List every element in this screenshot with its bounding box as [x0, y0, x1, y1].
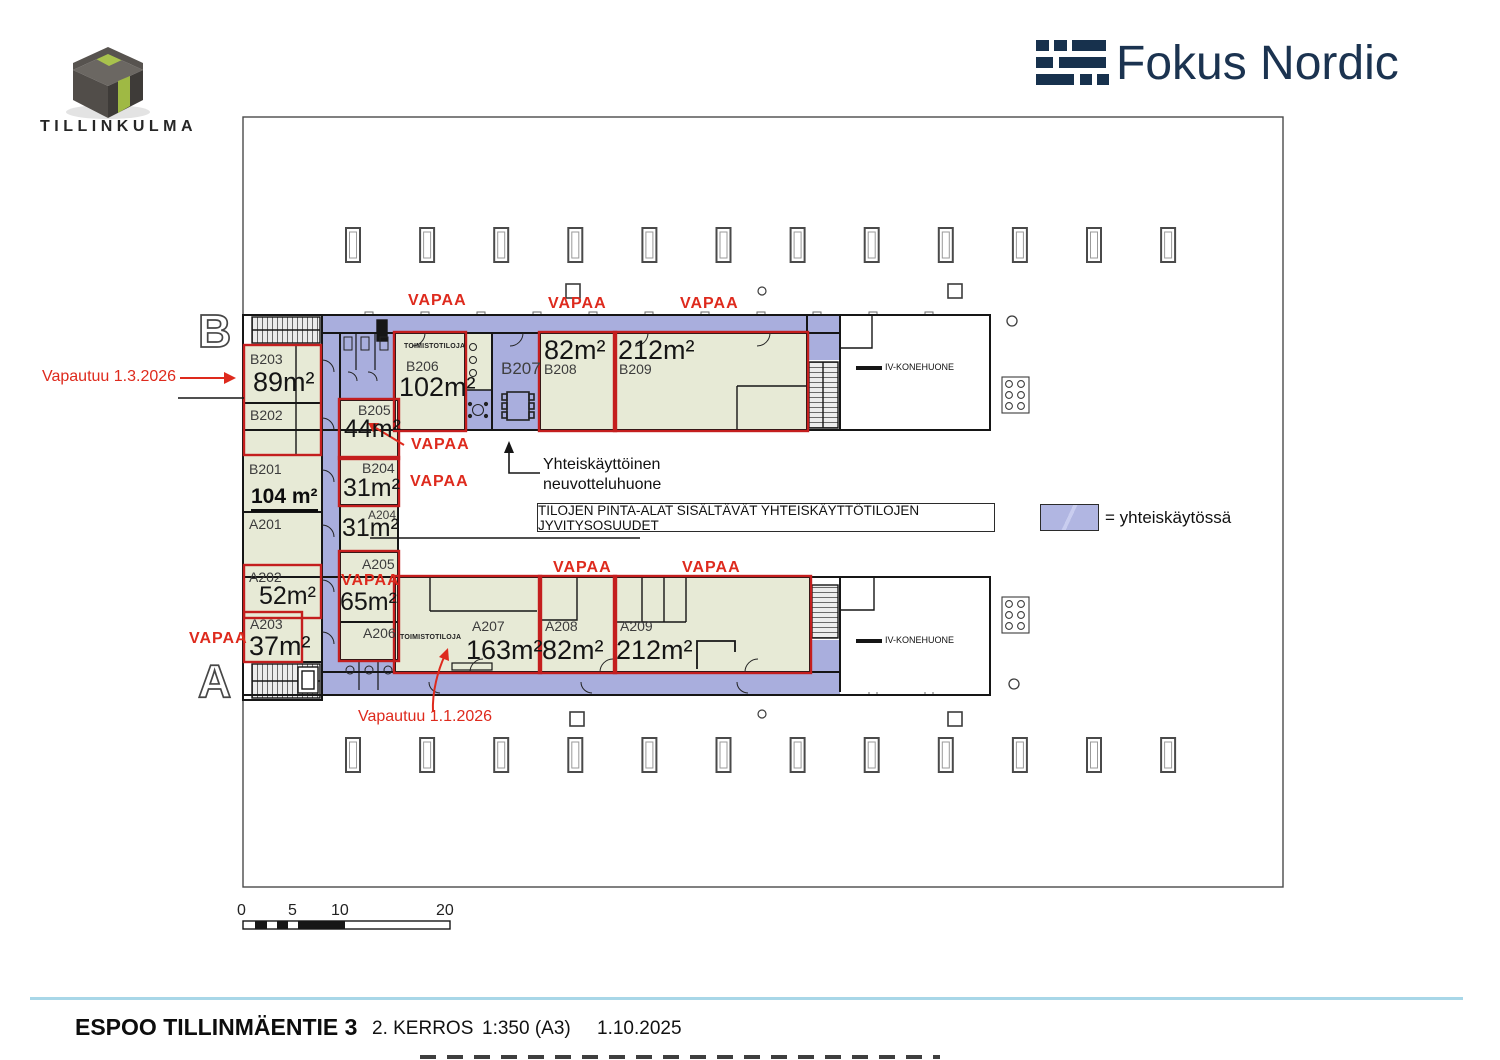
vapaa-label-A203: VAPAA — [189, 631, 248, 647]
machine-room-top-label: IV-KONEHUONE — [856, 363, 954, 372]
room-id-B202: B202 — [250, 408, 283, 422]
vacating-note-a206: Vapautuu 1.1.2026 — [358, 709, 492, 725]
room-id-A207: A207 — [472, 619, 505, 633]
scale-tick-0: 0 — [237, 903, 246, 919]
footer-floor: 2. KERROS — [372, 1018, 473, 1040]
shared-use-swatch — [1040, 504, 1099, 531]
room-type-A206: TOIMISTOTILOJA — [400, 634, 461, 641]
room-area-B205: 44m² — [344, 417, 401, 442]
room-id-A201: A201 — [249, 517, 282, 531]
room-area-B209: 212m² — [618, 337, 695, 364]
scale-tick-5: 5 — [288, 903, 297, 919]
scale-tick-10: 10 — [331, 903, 349, 919]
struck-text-bar — [856, 639, 882, 643]
room-id-A209: A209 — [620, 619, 653, 633]
shared-use-label: = yhteiskäytössä — [1105, 509, 1231, 526]
room-area-B203: 89m² — [253, 369, 315, 396]
room-area-B201: 104 m² — [251, 486, 318, 512]
room-area-A202: 52m² — [259, 584, 316, 609]
vapaa-label-A209: VAPAA — [682, 560, 741, 576]
room-type-B206: TOIMISTOTILOJA — [404, 343, 465, 350]
vapaa-label-B204: VAPAA — [410, 474, 469, 490]
room-id-B207: B207 — [501, 360, 541, 377]
vapaa-label-A208: VAPAA — [553, 560, 612, 576]
room-area-B204: 31m² — [343, 476, 400, 501]
room-area-A203: 37m² — [249, 633, 311, 660]
room-id-B204: B204 — [362, 461, 395, 475]
section-letter-b: B — [198, 305, 231, 357]
room-id-B208: B208 — [544, 362, 577, 376]
room-id-B203: B203 — [250, 352, 283, 366]
meeting-room-note-line1: Yhteiskäyttöinen — [543, 457, 660, 473]
room-area-A205: 65m² — [340, 590, 397, 615]
scale-bar — [243, 921, 450, 929]
footer-divider — [30, 997, 1463, 1000]
room-area-B208: 82m² — [544, 337, 606, 364]
machine-room-bottom-label: IV-KONEHUONE — [856, 636, 954, 645]
page-edge-artifact — [420, 1055, 940, 1059]
section-letter-a: A — [198, 655, 231, 707]
room-id-B209: B209 — [619, 362, 652, 376]
footer-scale: 1:350 (A3) — [482, 1018, 571, 1040]
footer-date: 1.10.2025 — [597, 1018, 682, 1040]
room-area-A208: 82m² — [542, 637, 604, 664]
room-id-A206: A206 — [363, 626, 396, 640]
vapaa-label-B205: VAPAA — [411, 437, 470, 453]
legend-note-box: TILOJEN PINTA-ALAT SISÄLTÄVÄT YHTEISKÄYT… — [537, 503, 995, 532]
room-id-B201: B201 — [249, 462, 282, 476]
room-id-A203: A203 — [250, 617, 283, 631]
floor-plan-page: TILLINKULMA Fokus Nordic — [0, 0, 1500, 1060]
meeting-room-note-line2: neuvotteluhuone — [543, 477, 661, 493]
vapaa-label-A205: VAPAA — [341, 573, 400, 589]
scale-tick-20: 20 — [436, 903, 454, 919]
room-id-B206: B206 — [406, 359, 439, 373]
room-id-A205: A205 — [362, 557, 395, 571]
room-area-A207: 163m² — [466, 637, 543, 664]
footer-address: ESPOO TILLINMÄENTIE 3 — [75, 1014, 357, 1041]
room-area-A209: 212m² — [616, 637, 693, 664]
room-area-B206: 102m² — [399, 374, 476, 401]
vapaa-label-B209: VAPAA — [680, 296, 739, 312]
vapaa-label-B206: VAPAA — [408, 293, 467, 309]
room-id-A208: A208 — [545, 619, 578, 633]
room-area-A204: 31m² — [342, 516, 399, 541]
vapaa-label-B208: VAPAA — [548, 296, 607, 312]
vacating-note-b203: Vapautuu 1.3.2026 — [42, 369, 176, 385]
struck-text-bar — [856, 366, 882, 370]
